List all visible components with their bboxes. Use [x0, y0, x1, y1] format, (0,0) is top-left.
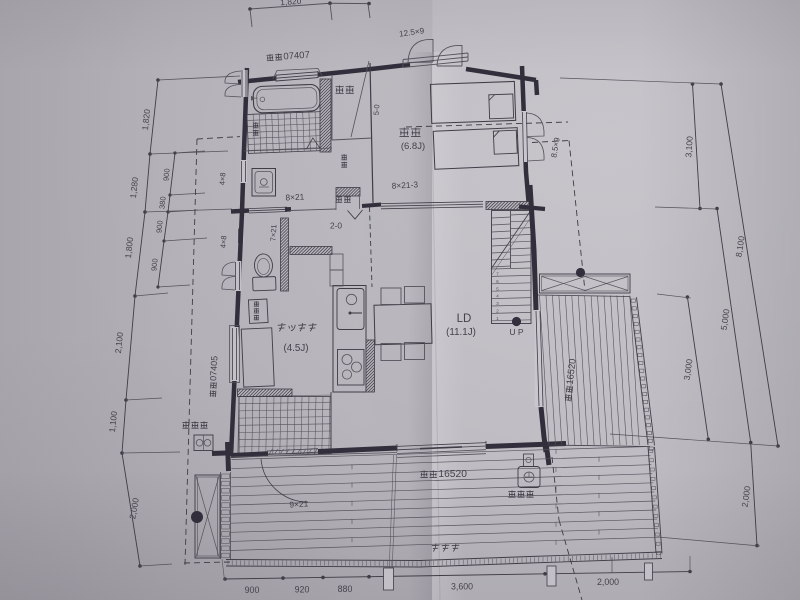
- svg-text:6: 6: [496, 279, 499, 285]
- svg-text:880: 880: [338, 584, 353, 594]
- svg-text:3: 3: [496, 301, 499, 307]
- svg-text:3,100: 3,100: [683, 136, 694, 158]
- svg-text:7×21: 7×21: [269, 224, 279, 241]
- svg-text:8×21-3: 8×21-3: [391, 179, 418, 190]
- svg-text:2-0: 2-0: [330, 221, 342, 231]
- svg-text:U P: U P: [509, 327, 524, 337]
- svg-text:9×21: 9×21: [289, 498, 309, 509]
- svg-text:5-0: 5-0: [372, 104, 382, 115]
- svg-text:2: 2: [496, 309, 499, 315]
- svg-text:(11.1J): (11.1J): [446, 327, 476, 338]
- svg-text:7: 7: [496, 272, 499, 278]
- svg-text:4×8: 4×8: [219, 235, 229, 248]
- svg-text:900: 900: [154, 220, 164, 233]
- svg-text:900: 900: [161, 168, 171, 181]
- svg-text:07405: 07405: [208, 356, 219, 382]
- svg-text:5: 5: [496, 286, 499, 292]
- svg-text:900: 900: [149, 258, 159, 271]
- svg-text:380: 380: [157, 196, 167, 209]
- svg-text:4×8: 4×8: [218, 172, 228, 185]
- svg-text:1: 1: [496, 316, 499, 322]
- svg-text:LD: LD: [457, 313, 472, 325]
- svg-text:8×21: 8×21: [285, 191, 305, 202]
- svg-text:16520: 16520: [438, 469, 467, 480]
- svg-text:900: 900: [245, 585, 260, 595]
- svg-text:4: 4: [496, 294, 499, 300]
- svg-text:(6.8J): (6.8J): [401, 141, 425, 152]
- svg-text:(4.5J): (4.5J): [283, 343, 308, 354]
- svg-text:2,000: 2,000: [597, 577, 619, 587]
- svg-text:07407: 07407: [283, 50, 310, 63]
- svg-text:3,600: 3,600: [451, 582, 473, 592]
- svg-text:920: 920: [295, 585, 310, 595]
